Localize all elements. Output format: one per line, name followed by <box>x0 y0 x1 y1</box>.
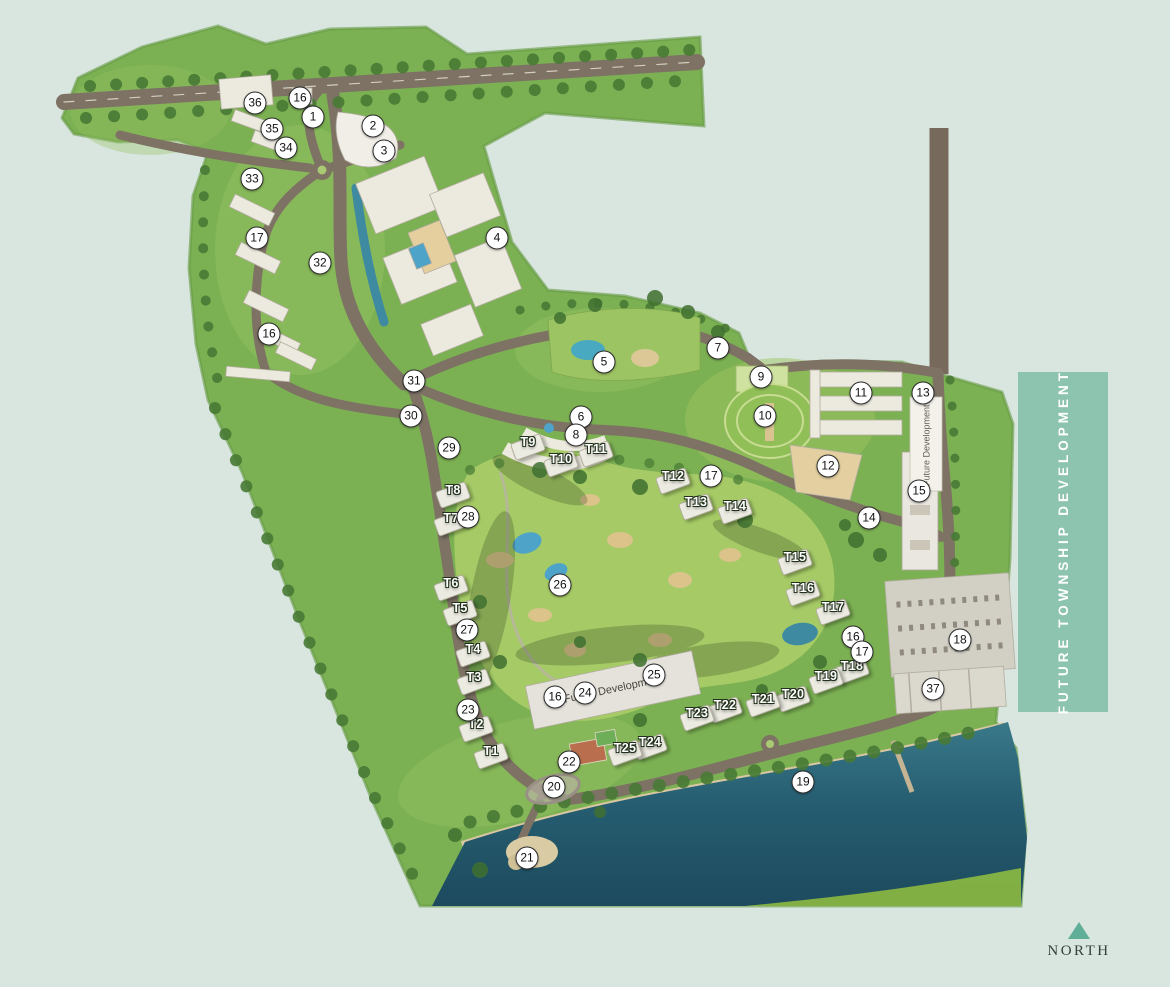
map-artwork <box>0 0 1170 987</box>
map-marker-16-17[interactable]: 16 <box>544 686 567 709</box>
map-marker-34-38[interactable]: 34 <box>275 137 298 160</box>
map-marker-31-35[interactable]: 31 <box>403 370 426 393</box>
tower-label-T16[interactable]: T16 <box>792 581 814 595</box>
map-marker-37-41[interactable]: 37 <box>922 678 945 701</box>
tower-label-T15[interactable]: T15 <box>784 550 806 564</box>
tower-label-T6[interactable]: T6 <box>443 576 458 590</box>
map-marker-35-39[interactable]: 35 <box>261 118 284 141</box>
map-marker-1-0[interactable]: 1 <box>302 106 325 129</box>
north-label: NORTH <box>1037 943 1121 960</box>
map-marker-19-23[interactable]: 19 <box>792 771 815 794</box>
map-marker-10-9[interactable]: 10 <box>754 405 777 428</box>
tower-label-T17[interactable]: T17 <box>822 600 844 614</box>
map-marker-11-10[interactable]: 11 <box>850 382 873 405</box>
tower-label-T23[interactable]: T23 <box>686 706 708 720</box>
map-marker-16-15[interactable]: 16 <box>289 87 312 110</box>
future-township-banner-label: FUTURE TOWNSHIP DEVELOPMENT <box>1056 369 1071 714</box>
map-marker-20-24[interactable]: 20 <box>543 776 566 799</box>
tower-label-T3[interactable]: T3 <box>466 670 481 684</box>
map-marker-36-40[interactable]: 36 <box>244 92 267 115</box>
tower-label-T4[interactable]: T4 <box>465 642 480 656</box>
future-development-building-label: Future Development <box>912 400 942 490</box>
map-marker-14-13[interactable]: 14 <box>858 507 881 530</box>
map-marker-32-36[interactable]: 32 <box>309 252 332 275</box>
map-marker-23-27[interactable]: 23 <box>457 699 480 722</box>
map-marker-8-7[interactable]: 8 <box>565 424 588 447</box>
map-marker-15-14[interactable]: 15 <box>908 480 931 503</box>
map-marker-9-8[interactable]: 9 <box>750 366 773 389</box>
map-marker-29-33[interactable]: 29 <box>438 437 461 460</box>
tower-label-T25[interactable]: T25 <box>614 741 636 755</box>
tower-label-T14[interactable]: T14 <box>724 499 746 513</box>
tower-label-T20[interactable]: T20 <box>782 687 804 701</box>
map-marker-21-25[interactable]: 21 <box>516 847 539 870</box>
map-marker-30-34[interactable]: 30 <box>400 405 423 428</box>
map-marker-18-22[interactable]: 18 <box>949 629 972 652</box>
map-marker-13-12[interactable]: 13 <box>912 382 935 405</box>
tower-label-T13[interactable]: T13 <box>685 495 707 509</box>
map-marker-12-11[interactable]: 12 <box>817 455 840 478</box>
map-marker-16-16[interactable]: 16 <box>258 323 281 346</box>
map-marker-5-4[interactable]: 5 <box>593 351 616 374</box>
future-township-banner: FUTURE TOWNSHIP DEVELOPMENT <box>1018 372 1108 712</box>
map-marker-17-20[interactable]: 17 <box>700 465 723 488</box>
tower-label-T19[interactable]: T19 <box>815 669 837 683</box>
map-marker-3-2[interactable]: 3 <box>373 140 396 163</box>
map-marker-2-1[interactable]: 2 <box>362 115 385 138</box>
tower-label-T9[interactable]: T9 <box>520 435 535 449</box>
map-marker-28-32[interactable]: 28 <box>457 506 480 529</box>
map-marker-25-29[interactable]: 25 <box>643 664 666 687</box>
tower-label-T21[interactable]: T21 <box>752 692 774 706</box>
tower-label-T24[interactable]: T24 <box>639 735 661 749</box>
north-arrow-icon <box>1068 922 1090 939</box>
map-marker-27-31[interactable]: 27 <box>456 619 479 642</box>
map-marker-33-37[interactable]: 33 <box>241 168 264 191</box>
map-marker-17-19[interactable]: 17 <box>246 227 269 250</box>
tower-label-T5[interactable]: T5 <box>452 601 467 615</box>
tower-label-T12[interactable]: T12 <box>662 469 684 483</box>
map-marker-26-30[interactable]: 26 <box>549 574 572 597</box>
map-marker-7-6[interactable]: 7 <box>707 337 730 360</box>
map-marker-24-28[interactable]: 24 <box>574 682 597 705</box>
map-marker-22-26[interactable]: 22 <box>558 751 581 774</box>
tower-label-T22[interactable]: T22 <box>714 698 736 712</box>
tower-label-T1[interactable]: T1 <box>483 744 498 758</box>
masterplan-canvas: FUTURE TOWNSHIP DEVELOPMENT Future Devel… <box>0 0 1170 987</box>
tower-label-T10[interactable]: T10 <box>550 452 572 466</box>
tower-label-T8[interactable]: T8 <box>445 483 460 497</box>
north-indicator: NORTH <box>1037 922 1121 960</box>
map-marker-17-21[interactable]: 17 <box>851 641 874 664</box>
map-marker-4-3[interactable]: 4 <box>486 227 509 250</box>
tower-label-T11[interactable]: T11 <box>585 442 607 456</box>
